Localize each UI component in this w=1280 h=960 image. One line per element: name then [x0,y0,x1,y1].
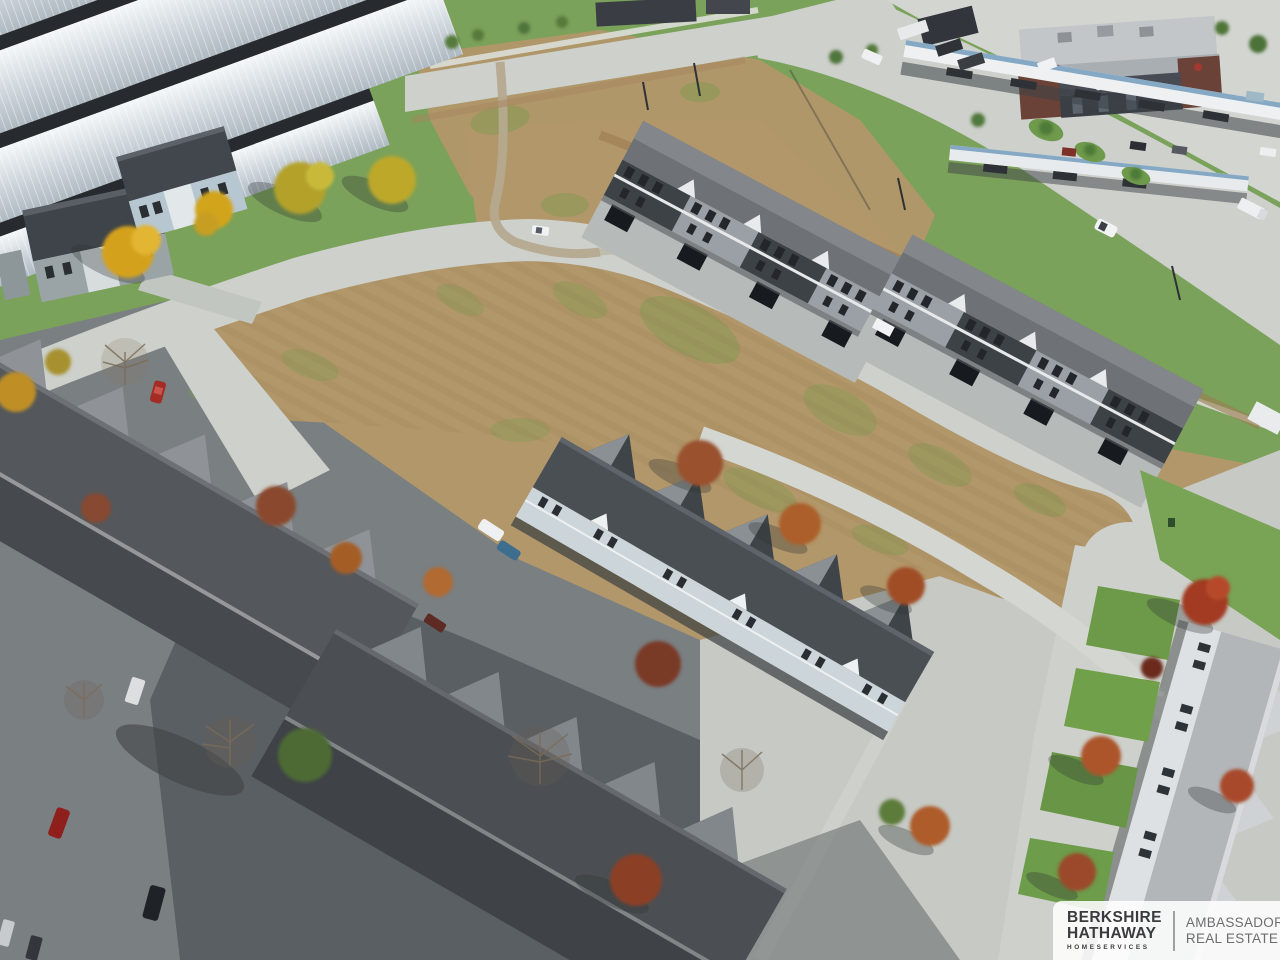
watermark-brand-block: BERKSHIRE HATHAWAY HOMESERVICES [1067,910,1162,951]
brand-line-1: BERKSHIRE [1067,910,1162,926]
brand-subtitle: HOMESERVICES [1067,945,1162,951]
aerial-photo: CASEY'S [0,0,1280,960]
agency-line-1: AMBASSADOR [1186,915,1280,930]
agency-line-2: REAL ESTATE [1186,931,1280,946]
watermark-divider [1173,911,1175,951]
watermark-agency-block: AMBASSADOR REAL ESTATE [1186,915,1280,945]
aerial-photo-canvas: CASEY'S [0,0,1280,960]
watermark-berkshire-hathaway: BERKSHIRE HATHAWAY HOMESERVICES AMBASSAD… [1053,901,1280,960]
brand-line-2: HATHAWAY [1067,926,1162,942]
